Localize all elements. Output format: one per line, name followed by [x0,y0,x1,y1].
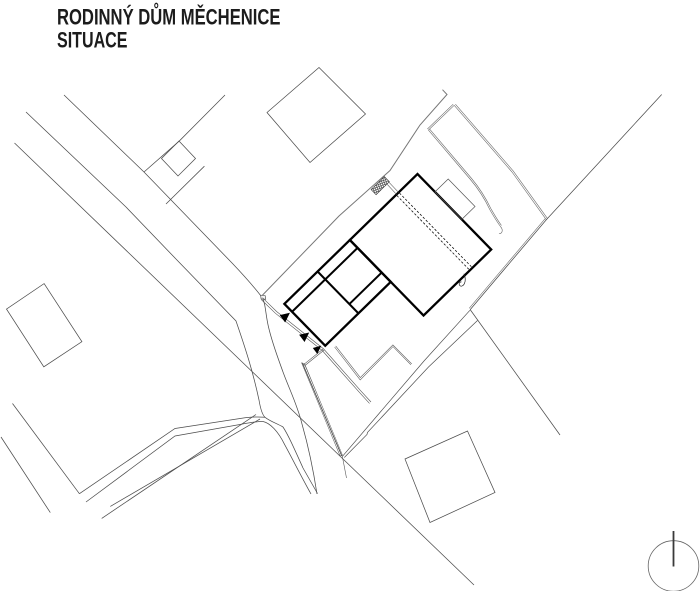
svg-text:SITUACE: SITUACE [57,27,128,52]
svg-text:RODINNÝ DŮM MĚCHENICE: RODINNÝ DŮM MĚCHENICE [57,2,281,30]
